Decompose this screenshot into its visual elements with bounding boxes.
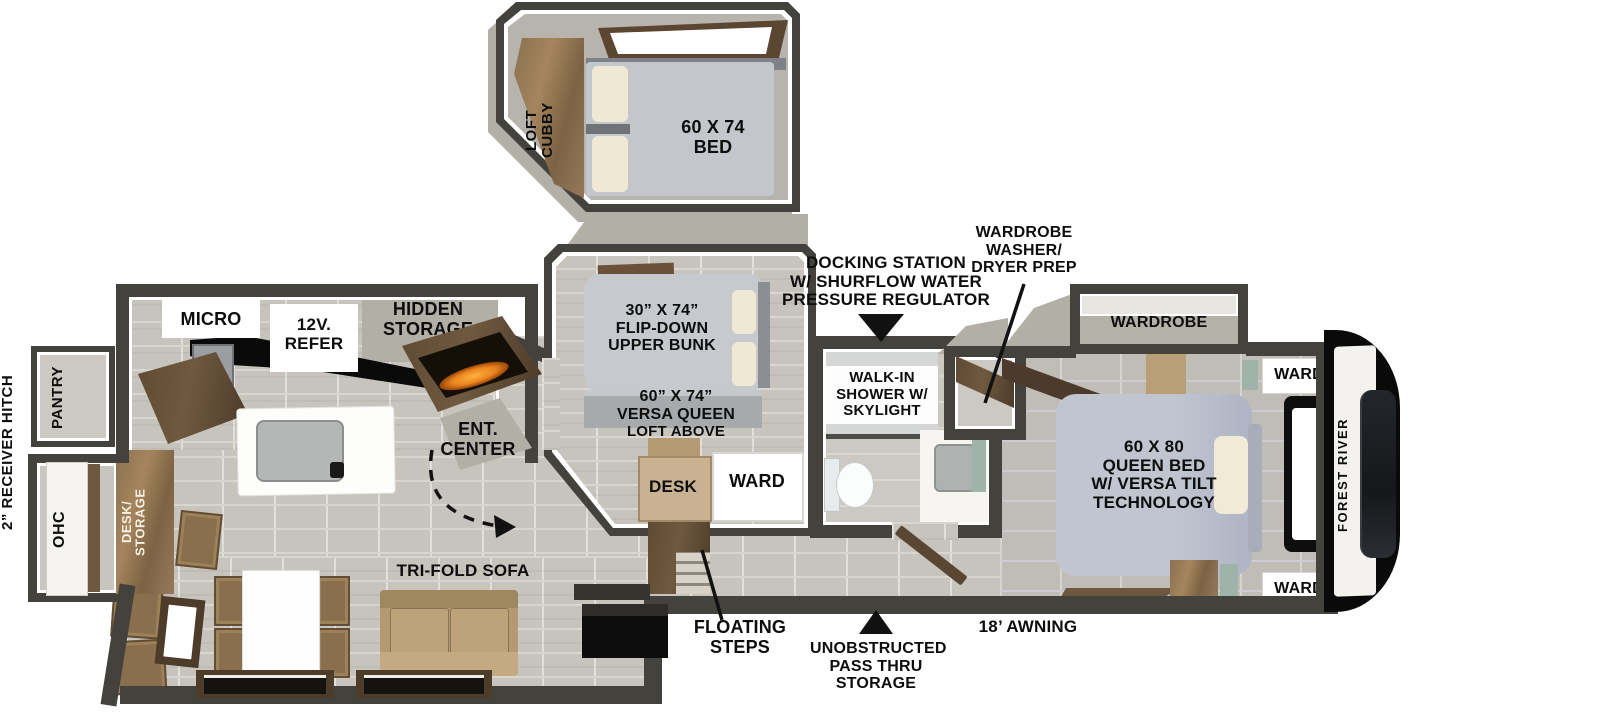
brand-label: FOREST RIVER: [1336, 392, 1358, 558]
bottom-wall: [650, 596, 1338, 614]
queen-bed-label: 60 X 80 QUEEN BED W/ VERSA TILT TECHNOLO…: [1068, 438, 1240, 513]
upper-bunk-label: 30” X 74” FLIP-DOWN UPPER BUNK: [592, 302, 732, 355]
loft-cubby-label: LOFT CUBBY: [524, 70, 582, 190]
micro-label: MICRO: [162, 300, 260, 338]
refer-label: 12V. REFER: [270, 304, 358, 372]
bunk-pillow: [732, 290, 756, 334]
desk-chair: [175, 510, 223, 570]
desk-storage-label: DESK/ STORAGE: [120, 466, 170, 578]
receiver-hitch-label: 2” RECEIVER HITCH: [0, 332, 30, 572]
wardrobe-label: WARDROBE: [1080, 314, 1238, 332]
wd-prep-label: WARDROBE WASHER/ DRYER PREP: [960, 224, 1088, 277]
loft-pillow: [592, 66, 628, 122]
ent-center-label: ENT. CENTER: [428, 420, 528, 460]
versa-queen-label: 60” X 74” VERSA QUEEN: [596, 388, 756, 423]
slide-window: [155, 596, 206, 668]
dinette-table: [242, 570, 320, 676]
shower-label: WALK-IN SHOWER W/ SKYLIGHT: [826, 366, 938, 424]
loft-bed-label: 60 X 74 BED: [648, 118, 778, 158]
sofa-label: TRI-FOLD SOFA: [388, 562, 538, 581]
slide-window: [356, 670, 492, 698]
bunk-pillow: [732, 342, 756, 386]
awning-label: 18’ AWNING: [968, 618, 1088, 637]
cap-decal: [1360, 390, 1396, 558]
tri-fold-sofa: [380, 590, 518, 676]
ohc-label: OHC: [52, 490, 80, 568]
bunk-ward-label: WARD: [712, 472, 802, 492]
floating-steps-label: FLOATING STEPS: [688, 618, 792, 658]
faucet: [330, 462, 344, 478]
pass-thru-label: UNOBSTRUCTED PASS THRU STORAGE: [810, 640, 942, 693]
rv-floorplan: LOFT CUBBY 60 X 74 BED TRI-FOLD SOFA PAN…: [0, 0, 1600, 716]
bunk-door-opening: [542, 358, 560, 450]
dinette-chair: [316, 576, 350, 626]
entry-steps: [582, 604, 668, 658]
pantry-label: PANTRY: [50, 358, 96, 438]
loft-pillow: [592, 136, 628, 192]
slide-window: [196, 670, 334, 698]
desk-label: DESK: [640, 478, 706, 497]
bath-sink: [934, 444, 976, 492]
nightstand: [1170, 560, 1218, 598]
